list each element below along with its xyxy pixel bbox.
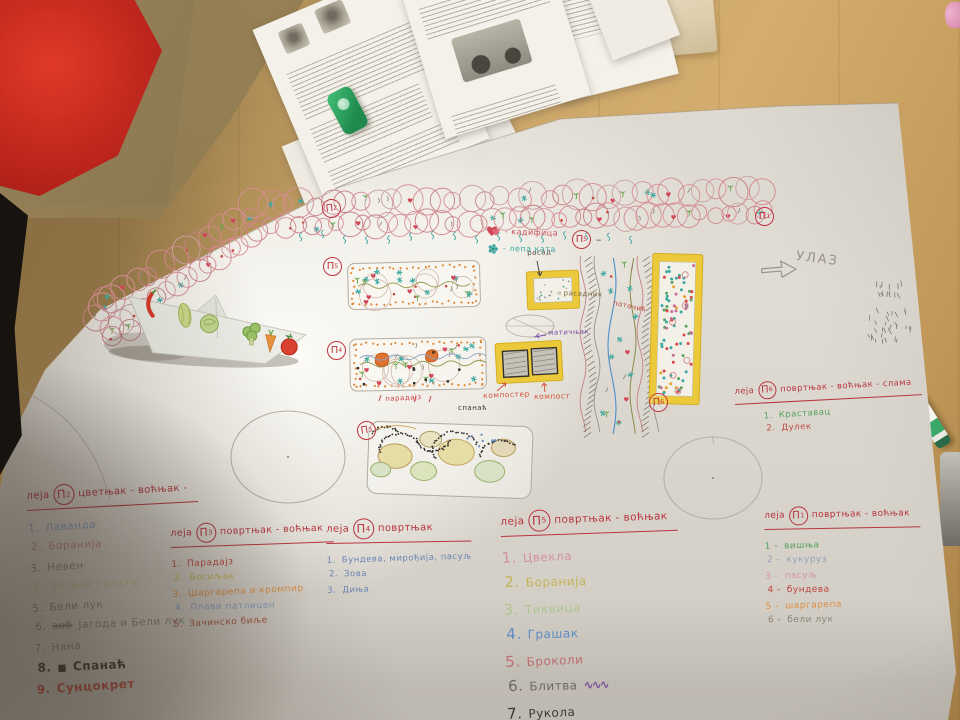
bed-marker-p1: П1 — [755, 207, 774, 226]
item-text: Бели лук — [49, 598, 103, 613]
list-item: 3.Тиквица — [503, 592, 681, 618]
poster-edge — [192, 103, 898, 262]
item-number: 7. — [34, 642, 46, 655]
compost-box — [495, 340, 563, 383]
list-prefix: леја — [326, 523, 349, 534]
item-number: 1. — [28, 522, 40, 535]
item-text: Плави патлиџан — [190, 600, 275, 612]
compost-arrows — [497, 383, 547, 392]
list-item: 1 -вишња — [765, 537, 921, 552]
list-item: 4 -бундева — [767, 584, 923, 595]
legend-icons — [487, 226, 499, 253]
list-item: 5.Броколи — [505, 644, 683, 670]
list-items: 1 -вишња2 -кукуруз3 -пасуљ4 -бундева5 -ш… — [765, 538, 922, 631]
bed-marker-p5: П5 — [323, 257, 342, 276]
plant-list-p3: лејаП3повртњак - воћњак1.Парадајз2.Босиљ… — [170, 518, 337, 633]
item-number: 2. — [766, 423, 776, 433]
item-text: Боранија — [48, 538, 102, 552]
list-item: 9.Сунцокрет — [36, 671, 208, 696]
marker-circle: П2 — [321, 198, 342, 219]
bed-id-circle: П6 — [758, 381, 777, 400]
item-number: 2. — [504, 572, 520, 590]
list-item: 7.Нана — [34, 631, 206, 654]
item-text: Невен — [47, 559, 84, 573]
list-item: 5.Зачинско биље — [173, 612, 336, 630]
list-item: 2.Боранија — [504, 568, 682, 591]
item-number: 3 - — [765, 571, 779, 581]
bed-id-circle: П2 — [53, 484, 75, 506]
item-number: 3. — [327, 585, 336, 595]
item-text: Грашак — [527, 626, 578, 641]
list-item: 3.Шаргарепа и кромпир — [172, 582, 335, 600]
bed-p5 — [347, 260, 480, 311]
item-text: Диња — [342, 584, 369, 595]
item-text: Јагода и Бели лук — [78, 614, 185, 631]
item-number: 6. — [35, 620, 47, 632]
plant-list-p6: лејаП6повртњак - воћњак - слама1.Крастав… — [734, 373, 924, 439]
list-title: цветњак - воћњак - — [78, 482, 188, 499]
item-text: Рукола — [528, 704, 576, 720]
item-text: Зелена салата — [50, 576, 138, 592]
list-item: 4.Плави патлиџан — [175, 599, 338, 613]
entrance-arrow — [761, 260, 796, 278]
list-item: 2.Зова — [329, 568, 474, 579]
item-text: кукуруз — [786, 554, 827, 564]
paper-boat — [103, 287, 308, 371]
item-number: 3. — [172, 589, 182, 599]
item-text: Спанаћ — [73, 657, 127, 673]
item-number: 1. — [501, 548, 517, 567]
item-number: 5. — [173, 619, 183, 629]
item-number: 5 - — [766, 601, 780, 611]
marker-circle: П6 — [648, 392, 669, 413]
list-prefix: леја — [26, 490, 50, 502]
item-number: 4. — [506, 624, 522, 642]
list-item: 2 -кукуруз — [767, 554, 923, 565]
item-number: 4. — [33, 580, 45, 592]
item-text: бели лук — [787, 614, 833, 624]
list-title: повртњак - воћњак — [554, 510, 668, 526]
item-number: 3. — [503, 600, 519, 619]
item-text: шаргарепа — [785, 599, 842, 611]
item-number: 3. — [30, 562, 42, 575]
item-text: Краставац — [779, 407, 832, 420]
list-item: 8.■Спанаћ — [37, 653, 209, 674]
item-number: 8. — [37, 660, 52, 675]
plant-list-p4: лејаП4повртњак1.Бундева, мирођија, пасуљ… — [326, 516, 472, 599]
pencil-ellipse-small — [506, 315, 554, 337]
item-text: пасуљ — [784, 570, 817, 581]
bed-list-header: лејаП3повртњак - воћњак — [170, 518, 334, 547]
struck-word: зоб — [52, 619, 72, 632]
item-text: Боранија — [526, 574, 587, 590]
bed-list-header: лејаП4повртњак — [326, 516, 471, 543]
list-item: 3.Диња — [327, 581, 472, 595]
list-item: 1.Цвекла — [501, 540, 679, 566]
bed-vertical — [649, 253, 703, 404]
bed-id-circle: П3 — [196, 522, 216, 542]
tick-marks — [379, 395, 431, 402]
item-number: 2. — [31, 540, 43, 552]
bed-p4 — [350, 337, 487, 391]
list-prefix: леја — [764, 511, 785, 521]
item-text: Блитва — [529, 678, 577, 693]
list-prefix: леја — [170, 528, 192, 540]
item-text: Босиљак — [189, 571, 234, 582]
item-text: Нана — [51, 640, 81, 654]
item-text: Тиквица — [524, 600, 581, 617]
item-text: Цвекла — [523, 548, 573, 564]
list-item: 7.Рукола — [507, 696, 685, 720]
legend-bed-marker: П5– — [572, 230, 602, 249]
bed-id-circle: П4 — [353, 518, 374, 539]
list-item: 6.Блитва∿∿∿ — [508, 672, 686, 695]
bed-marker-p6: П6 — [648, 392, 669, 413]
list-title: повртњак - воћњак — [812, 509, 910, 521]
item-number: 2 - — [767, 555, 780, 565]
item-number: 6. — [508, 676, 524, 694]
item-text: Лаванда — [45, 518, 97, 533]
item-number: 9. — [36, 682, 51, 697]
list-item: 1.Парадајз — [171, 552, 334, 570]
bed-list-header: лејаП1повртњак - воћњак — [764, 504, 920, 529]
list-items: 1.Парадајз2.Босиљак3.Шаргарепа и кромпир… — [171, 553, 336, 634]
pen-scribble: ∿∿∿ — [583, 677, 608, 692]
seed-box — [526, 270, 579, 310]
list-item: 4.Грашак — [506, 620, 684, 643]
list-prefix: леја — [500, 515, 525, 528]
item-number: 2. — [329, 569, 338, 579]
item-text: Дулек — [781, 421, 811, 432]
bed-marker-p4: П4 — [327, 341, 346, 360]
item-text: Сунцокрет — [56, 676, 135, 695]
list-title: повртњак — [378, 522, 433, 534]
bed-list-header: лејаП5повртњак - воћњак — [500, 505, 678, 537]
bed-marker-p2: П2 — [321, 198, 342, 219]
list-items: 1.Бундева, мирођија, пасуљ2.Зова3.Диња — [327, 552, 473, 600]
photo-garden-plan: УЛАЗ - кадифица - лепа ката расад ◃ раса… — [0, 0, 960, 720]
plant-list-p1: лејаП1повртњак - воћњак1 -вишња2 -кукуру… — [764, 504, 922, 630]
legend-dash: – — [596, 233, 602, 246]
item-number: 2. — [174, 573, 184, 583]
item-text: бундева — [787, 584, 830, 594]
marker-circle: П5 — [572, 230, 591, 249]
list-prefix: леја — [734, 386, 754, 397]
item-text: Зова — [344, 569, 367, 579]
list-items: 1.Цвекла2.Боранија3.Тиквица4.Грашак5.Бро… — [501, 542, 685, 720]
bed-id-circle: П1 — [789, 506, 808, 525]
list-item: 1.Бундева, мирођија, пасуљ — [327, 551, 472, 565]
bed-p3 — [367, 421, 533, 499]
bed-marker-p3: П3 — [356, 420, 377, 441]
item-number: 4. — [175, 603, 185, 613]
item-number: 1. — [327, 555, 336, 565]
item-number: 1. — [763, 410, 773, 421]
item-text: Парадајз — [187, 557, 234, 569]
marker-circle: П4 — [327, 341, 346, 360]
list-item: 3 -пасуљ — [765, 567, 921, 582]
plant-list-p5: лејаП5повртњак - воћњак1.Цвекла2.Бораниј… — [500, 505, 685, 720]
item-bullet: ■ — [57, 662, 67, 673]
item-number: 1 - — [765, 541, 779, 551]
list-item: 6 -бели лук — [768, 614, 924, 625]
pencil-scribbles — [868, 281, 911, 344]
item-number: 5. — [32, 602, 44, 615]
item-number: 5. — [505, 652, 521, 671]
marker-circle: П5 — [323, 257, 342, 276]
item-text: Шаргарепа и кромпир — [188, 583, 304, 598]
list-title: повртњак - воћњак — [220, 523, 324, 538]
item-number: 4 - — [767, 585, 780, 595]
item-text: Броколи — [526, 652, 583, 669]
maticnjak-arrow — [534, 334, 546, 339]
list-item: 5 -шаргарепа — [766, 597, 922, 612]
marker-circle: П3 — [356, 420, 377, 441]
marker-circle: П1 — [755, 207, 774, 226]
stream-paths — [580, 256, 659, 438]
item-number: 1. — [171, 559, 181, 569]
item-text: Зачинско биље — [189, 615, 268, 629]
bed-id-circle: П5 — [528, 509, 550, 531]
list-item: 2.Босиљак — [174, 569, 337, 583]
list-title: повртњак - воћњак - слама — [780, 378, 912, 395]
item-text: Бундева, мирођија, пасуљ — [342, 551, 472, 565]
item-number: 7. — [507, 704, 523, 720]
item-number: 6 - — [768, 615, 781, 625]
item-text: вишња — [784, 540, 820, 551]
